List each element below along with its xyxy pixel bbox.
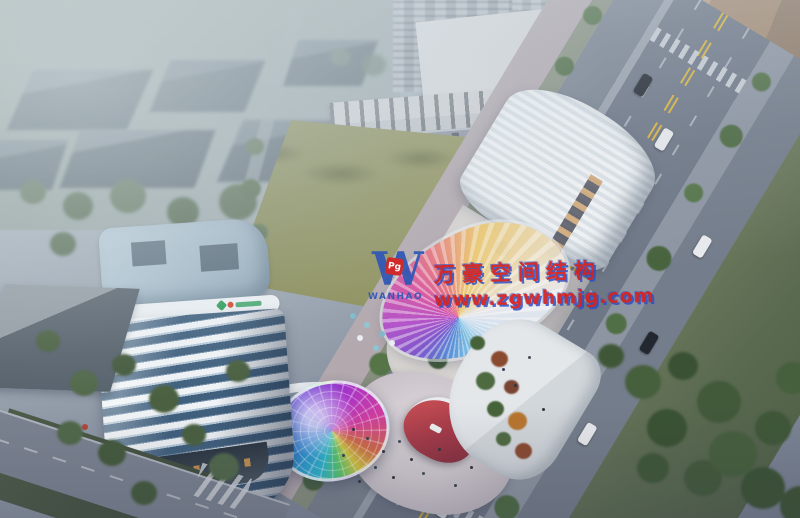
watermark-company-name: 万豪空间结构 xyxy=(434,253,655,289)
tower-logo-green-diamond xyxy=(216,300,227,311)
watermark: W Pg WANHAO 万豪空间结构 www.zgwhmjg.com xyxy=(368,250,636,309)
tower-logo xyxy=(217,299,261,310)
hazy-trees-north xyxy=(330,48,350,66)
car xyxy=(577,422,598,447)
watermark-text: 万豪空间结构 www.zgwhmjg.com xyxy=(434,250,655,309)
tree-row-field-west xyxy=(246,138,264,155)
rooftop-plant-box xyxy=(199,243,239,272)
car xyxy=(639,331,660,356)
tree-row-northwest xyxy=(20,180,46,204)
dark-building-block xyxy=(59,130,215,188)
dark-building-block xyxy=(282,40,379,86)
teal-umbrellas xyxy=(350,313,356,319)
watermark-website: www.zgwhmjg.com xyxy=(434,285,655,311)
tower-logo-red-dot xyxy=(227,302,233,308)
pedestrian-dots xyxy=(352,428,355,431)
rooftop-plant-box xyxy=(131,240,167,266)
east-terrace-planting xyxy=(470,336,485,350)
tower-logo-text-bar xyxy=(235,300,261,307)
watermark-logo-name: WANHAO xyxy=(368,292,423,302)
dark-building-block xyxy=(149,60,265,112)
dark-building-block xyxy=(7,70,154,130)
red-umbrellas-west-terrace xyxy=(82,424,88,430)
watermark-logo-badge: Pg xyxy=(385,257,404,276)
watermark-logo: W Pg WANHAO xyxy=(368,250,426,308)
aerial-rendering-scene: 万达广场 xyxy=(0,0,800,518)
car xyxy=(692,234,713,259)
trees-southwest xyxy=(36,330,60,352)
